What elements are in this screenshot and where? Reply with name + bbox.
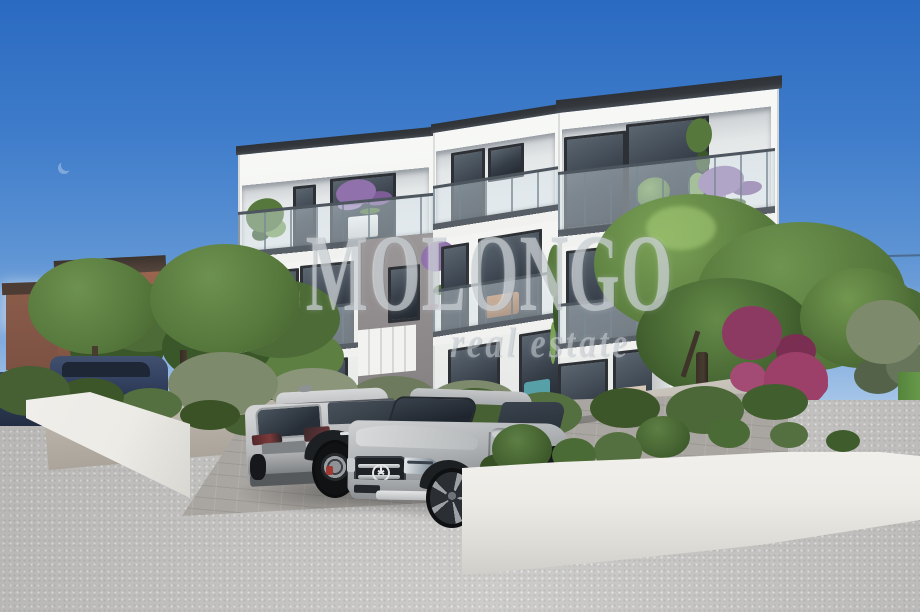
suv1-brake-caliper [326, 466, 333, 475]
dark-car-side-windows [62, 362, 150, 377]
left-tree-1-canopy [28, 258, 158, 354]
left-tree-2-canopy [150, 244, 300, 354]
watermark-brand: MOLONGO [306, 224, 674, 323]
headlight-drl [407, 461, 433, 465]
far-right-olive-trees [846, 300, 920, 364]
suv1-front-wheel [250, 454, 266, 480]
magenta-bloom-1 [722, 306, 782, 360]
hedge-balls-right [636, 416, 690, 458]
render-canvas: MOLONGO real estate [0, 0, 920, 612]
suv2-headlight-left [347, 458, 355, 472]
moon-artifact [58, 162, 70, 174]
watermark-tagline: real estate [450, 320, 631, 368]
